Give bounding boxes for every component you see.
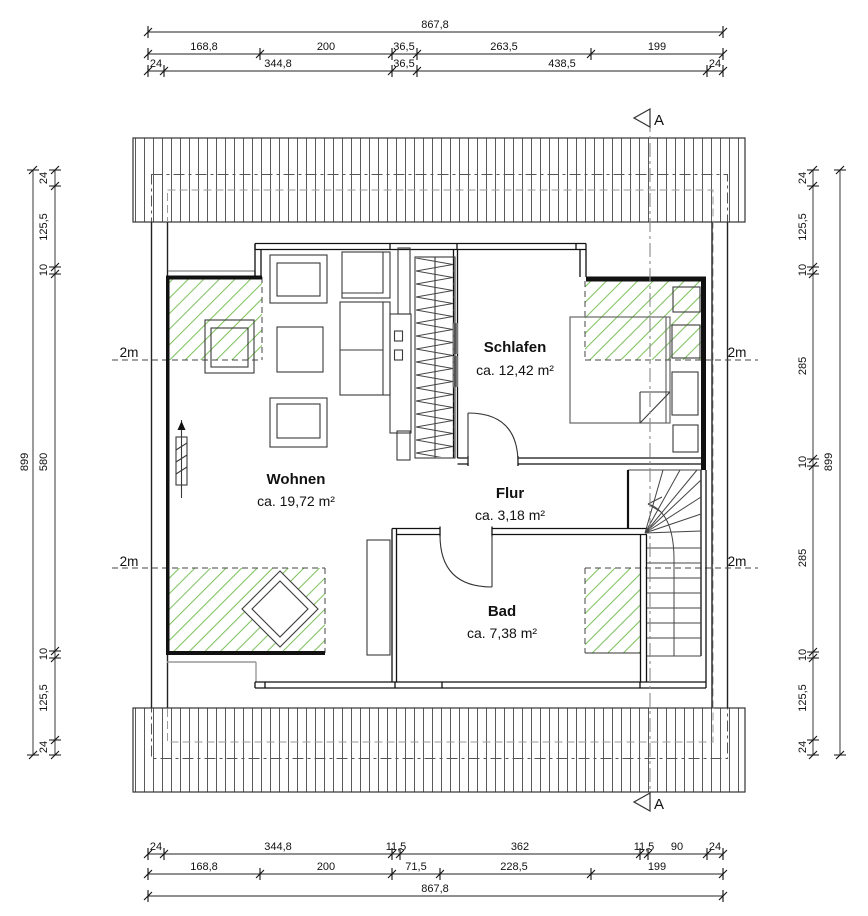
dim-text: 10 — [797, 456, 809, 468]
dim-text: 24 — [797, 172, 809, 184]
dim-text: 285 — [797, 357, 809, 375]
dim-text: 200 — [317, 861, 335, 873]
dim-text: 10 — [797, 649, 809, 661]
dim-text: 10 — [38, 264, 50, 276]
dim-text: 344,8 — [264, 58, 292, 70]
cabinet-knob — [395, 331, 403, 341]
nightstand — [673, 425, 698, 452]
dim-text: 24 — [150, 841, 162, 853]
bath-furniture — [367, 540, 390, 655]
dim-text: 899 — [19, 453, 31, 471]
armchair-bottom — [270, 398, 327, 447]
dim-text: 580 — [38, 453, 50, 471]
loveseat-seat — [342, 252, 383, 293]
dim-text: 438,5 — [548, 58, 576, 70]
dim-text: 24 — [150, 58, 162, 70]
height-label: 2m — [728, 345, 747, 360]
room-area-schlafen: ca. 12,42 m² — [476, 362, 554, 378]
top-roof-band — [133, 138, 745, 222]
door-bath — [440, 535, 492, 587]
dim-text: 10 — [38, 648, 50, 660]
dim-text: 200 — [317, 41, 335, 53]
bath-cabinet — [367, 540, 390, 655]
height-label: 2m — [120, 554, 139, 569]
dim-text: 263,5 — [490, 41, 518, 53]
room-label-wohnen: Wohnen — [267, 471, 326, 488]
room-area-wohnen: ca. 19,72 m² — [257, 493, 335, 509]
dim-text: 344,8 — [264, 841, 292, 853]
door-bedroom — [468, 413, 518, 463]
top-dimension-lines: 867,8 168,8 200 36,5 263,5 199 24 344,8 … — [144, 19, 727, 77]
dim-text: 199 — [648, 861, 666, 873]
room-label-flur: Flur — [496, 485, 524, 502]
dim-text: 867,8 — [421, 883, 449, 895]
room-label-schlafen: Schlafen — [484, 339, 547, 356]
room-label-bad: Bad — [488, 603, 516, 620]
dim-text: 199 — [648, 41, 666, 53]
cabinet-knob — [395, 350, 403, 360]
dim-text: 867,8 — [421, 19, 449, 31]
radiator-arrow — [178, 421, 186, 430]
door-arc-bedroom — [468, 413, 518, 463]
floor-plan-page: A A 2m 2m 2m 2m Wohnen ca. 19,72 m² Schl… — [0, 0, 868, 916]
dim-text: 10 — [797, 264, 809, 276]
dim-text: 168,8 — [190, 861, 218, 873]
dim-text: 285 — [797, 549, 809, 567]
section-label-top: A — [654, 112, 664, 129]
dim-text: 125,5 — [38, 213, 50, 241]
hatch-top-right — [585, 281, 701, 360]
dim-text: 90 — [671, 841, 683, 853]
dim-text: 362 — [511, 841, 529, 853]
dim-text: 125,5 — [797, 213, 809, 241]
dim-text: 36,5 — [393, 41, 414, 53]
section-marker-top-icon — [634, 109, 650, 127]
dim-text: 168,8 — [190, 41, 218, 53]
shelf-stub — [398, 248, 410, 314]
dim-text: 899 — [823, 453, 835, 471]
dim-text: 11,5 — [386, 841, 407, 853]
nightstand — [672, 372, 698, 415]
dim-text: 228,5 — [500, 861, 528, 873]
closet-furniture — [390, 248, 455, 460]
room-area-bad: ca. 7,38 m² — [467, 625, 537, 641]
room-area-flur: ca. 3,18 m² — [475, 507, 545, 523]
armchair-top-seat — [277, 263, 320, 296]
dim-text: 24 — [797, 741, 809, 753]
cabinet — [390, 314, 411, 433]
dim-text: 11,5 — [634, 841, 655, 853]
bottom-dimension-lines: 24 344,8 11,5 362 11,5 90 24 168,8 200 7… — [144, 841, 727, 902]
dim-text: 24 — [38, 741, 50, 753]
section-marker-bottom-icon — [634, 793, 650, 811]
door-arc-bath — [440, 535, 492, 587]
hatch-bottom-right — [585, 568, 640, 653]
cabinet-small — [397, 431, 410, 460]
dim-text: 24 — [38, 172, 50, 184]
dim-text: 36,5 — [393, 58, 414, 70]
wardrobe-hangers — [416, 258, 454, 457]
dim-text: 125,5 — [38, 684, 50, 712]
coffee-table — [277, 327, 323, 372]
floor-plan-drawing: A A 2m 2m 2m 2m Wohnen ca. 19,72 m² Schl… — [0, 0, 868, 916]
left-dimension-lines: 899 24 125,5 10 580 10 125,5 24 — [19, 166, 61, 759]
right-dimension-lines: 24 125,5 10 285 10 285 10 125,5 24 899 — [797, 166, 846, 759]
height-label: 2m — [728, 554, 747, 569]
armchair-bottom-seat — [277, 404, 320, 438]
dim-text: 24 — [709, 841, 721, 853]
dim-text: 71,5 — [405, 861, 426, 873]
bottom-roof-band — [133, 708, 745, 792]
height-label: 2m — [120, 345, 139, 360]
dim-text: 125,5 — [797, 684, 809, 712]
dim-text: 24 — [709, 58, 721, 70]
sofa-cushions — [340, 302, 383, 395]
section-label-bottom: A — [654, 796, 664, 813]
